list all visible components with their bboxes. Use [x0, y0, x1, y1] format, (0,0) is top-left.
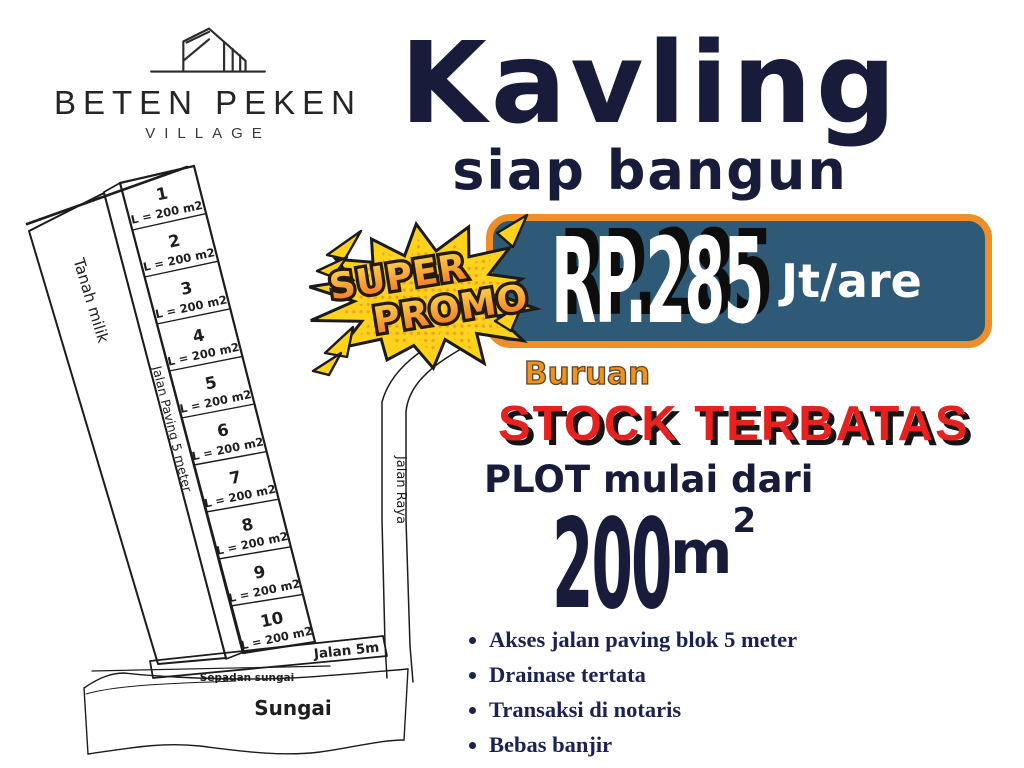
brand-logo: BETEN PEKEN VILLAGE [38, 22, 378, 142]
plot-number-label: 3 [179, 278, 194, 299]
feature-item: Bebas banjir [462, 727, 797, 762]
headline-title: Kavling [385, 28, 915, 140]
river-label: Sungai [254, 696, 332, 720]
plot-size-unit: m2 [670, 523, 756, 583]
brand-subtitle: VILLAGE [38, 125, 378, 142]
river-margin-line [92, 666, 330, 671]
price-amount: RP.285 [551, 222, 762, 340]
plot-size-number: 200 [552, 503, 670, 627]
plot-number-label: 6 [215, 420, 230, 441]
plot-size: 200 m2 [552, 503, 756, 627]
flyer: Tanah milik Jalan Paving 5 meter 1L = 20… [0, 0, 1024, 768]
plot-number-label: 7 [228, 467, 243, 488]
feature-item: Akses jalan paving blok 5 meter [462, 622, 797, 657]
left-parcel-label: Tanah milik [69, 255, 112, 345]
urgency-main: STOCK TERBATAS [498, 396, 970, 452]
left-parcel-outline [29, 193, 226, 664]
features-list: Akses jalan paving blok 5 meterDrainase … [462, 622, 797, 762]
plot-number-label: 4 [191, 325, 206, 346]
feature-item: Transaksi di notaris [462, 692, 797, 727]
plot-number-label: 10 [259, 608, 285, 631]
price-unit: Jt/are [781, 254, 922, 308]
brand-name: BETEN PEKEN [38, 84, 378, 122]
feature-item: Drainase tertata [462, 657, 797, 692]
super-promo-badge: SUPER PROMO [305, 203, 545, 383]
plot-number-label: 9 [252, 562, 267, 583]
plot-number-label: 1 [154, 183, 169, 204]
building-icon [149, 22, 267, 76]
price-amount-wrap: RP.285 [551, 222, 759, 340]
price-banner: RP.285 Jt/are [486, 214, 992, 348]
main-road-label: Jalan Raya [393, 455, 408, 524]
plot-column: 1L = 200 m22L = 200 m23L = 200 m24L = 20… [120, 166, 315, 653]
headline-subtitle: siap bangun [385, 144, 915, 198]
plot-size-number-wrap: 200 [552, 503, 658, 627]
urgency-lead: Buruan [524, 356, 650, 392]
headline: Kavling siap bangun [385, 28, 915, 198]
plot-number-label: 5 [203, 373, 218, 394]
plot-number-label: 2 [167, 231, 182, 252]
plot-number-label: 8 [240, 514, 255, 535]
